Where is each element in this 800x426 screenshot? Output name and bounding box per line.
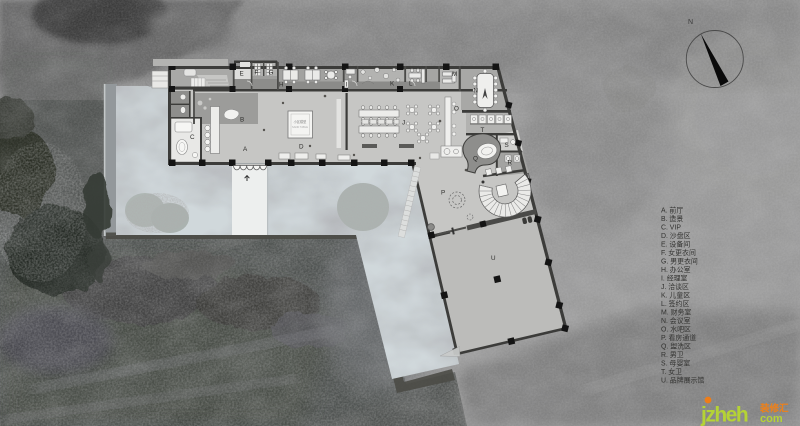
svg-text:C. VIP: C. VIP xyxy=(661,225,681,232)
svg-text:小区模型: 小区模型 xyxy=(294,119,308,124)
svg-text:H: H xyxy=(279,82,284,89)
svg-text:T: T xyxy=(481,127,485,134)
svg-text:G. 男更衣间: G. 男更衣间 xyxy=(661,257,698,266)
svg-text:R. 男卫: R. 男卫 xyxy=(661,351,684,359)
svg-text:H. 办公室: H. 办公室 xyxy=(661,265,691,274)
svg-text:R: R xyxy=(508,160,513,167)
svg-text:O. 水吧区: O. 水吧区 xyxy=(661,325,691,334)
svg-text:E: E xyxy=(240,71,244,78)
svg-text:U: U xyxy=(491,255,496,262)
svg-text:N. 会议室: N. 会议室 xyxy=(661,316,691,325)
svg-text:Q: Q xyxy=(473,156,478,163)
svg-text:D. 沙盘区: D. 沙盘区 xyxy=(661,231,691,240)
svg-text:L: L xyxy=(409,81,413,88)
svg-text:J: J xyxy=(402,120,405,127)
svg-text:P: P xyxy=(441,190,445,197)
svg-text:N: N xyxy=(474,88,479,95)
svg-text:F. 女更衣间: F. 女更衣间 xyxy=(661,248,696,257)
svg-text:U. 品牌展示馆: U. 品牌展示馆 xyxy=(661,376,704,385)
svg-text:S: S xyxy=(505,142,509,149)
svg-text:C: C xyxy=(190,134,195,141)
svg-text:D: D xyxy=(299,144,304,151)
svg-text:P. 看房通道: P. 看房通道 xyxy=(661,333,696,342)
svg-text:M. 财务室: M. 财务室 xyxy=(661,308,691,317)
svg-text:SAND TABLE: SAND TABLE xyxy=(292,125,308,129)
svg-text:Q. 盥洗区: Q. 盥洗区 xyxy=(661,342,691,351)
svg-text:jzheh: jzheh xyxy=(700,404,748,426)
svg-text:B: B xyxy=(240,117,244,124)
svg-text:B. 造景: B. 造景 xyxy=(661,214,683,223)
svg-text:S. 母婴室: S. 母婴室 xyxy=(661,359,690,368)
svg-text:F: F xyxy=(255,70,259,77)
svg-text:T. 女卫: T. 女卫 xyxy=(661,367,682,376)
svg-text:J. 洽谈区: J. 洽谈区 xyxy=(661,282,689,291)
svg-text:A. 前厅: A. 前厅 xyxy=(661,206,683,215)
svg-text:N: N xyxy=(688,19,693,26)
svg-text:O: O xyxy=(454,106,459,113)
svg-text:M: M xyxy=(452,71,457,78)
svg-text:I: I xyxy=(346,82,348,89)
svg-text:I. 经理室: I. 经理室 xyxy=(661,274,688,283)
svg-text:K. 儿童区: K. 儿童区 xyxy=(661,291,690,300)
svg-text:G: G xyxy=(269,70,274,77)
svg-text:E. 设备间: E. 设备间 xyxy=(661,240,690,249)
svg-text:L. 签约区: L. 签约区 xyxy=(661,299,689,308)
svg-text:com: com xyxy=(760,413,783,425)
